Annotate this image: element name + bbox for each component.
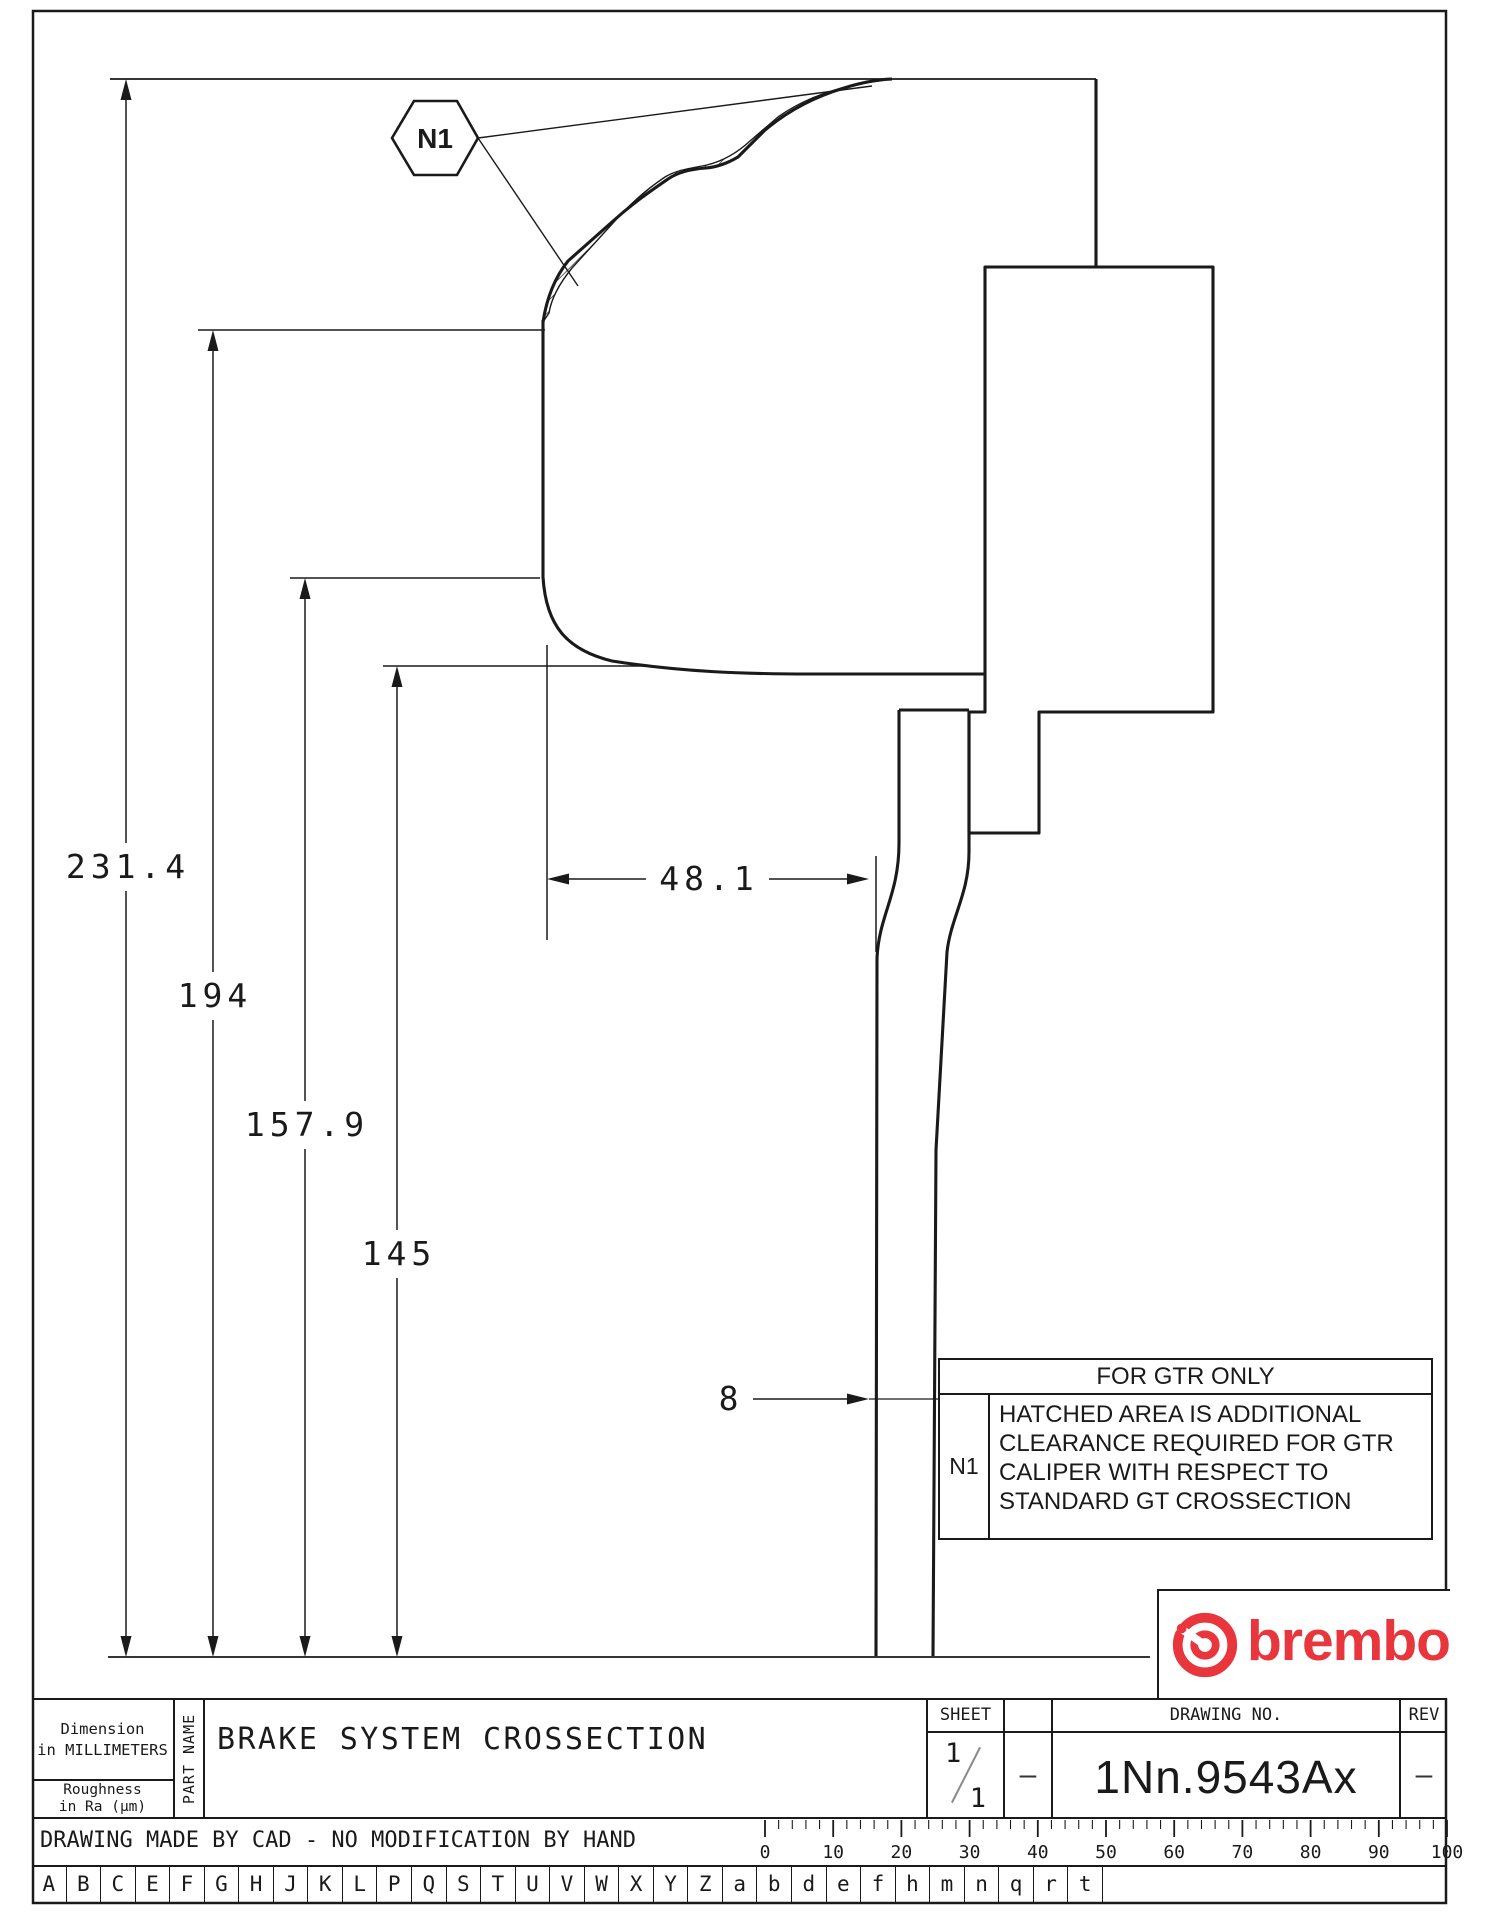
cad-note: DRAWING MADE BY CAD - NO MODIFICATION BY… <box>32 1819 1447 1863</box>
grid-ref-cell: f <box>861 1867 896 1902</box>
brembo-disc-icon <box>1168 1607 1242 1683</box>
sheet-numerator: 1 <box>945 1738 961 1769</box>
sheet-value: 1 1 <box>928 1733 1003 1817</box>
drawing-sheet: N1 231.4 194 157.9 145 48.1 8 0102030405… <box>0 0 1486 1920</box>
gtr-note-line: CALIPER WITH RESPECT TO <box>999 1458 1431 1487</box>
brembo-logo-box: brembo <box>1157 1589 1450 1698</box>
grid-ref-cell: A <box>32 1867 67 1902</box>
grid-ref-cell: C <box>101 1867 136 1902</box>
title-block: Dimension in MILLIMETERS Roughness in Ra… <box>32 1698 1447 1819</box>
grid-ref-cell: e <box>827 1867 862 1902</box>
grid-ref-cell: S <box>447 1867 482 1902</box>
grid-ref-cell: P <box>377 1867 412 1902</box>
part-name-value: BRAKE SYSTEM CROSSECTION <box>217 1722 708 1757</box>
grid-ref-cell: F <box>170 1867 205 1902</box>
grid-ref-cell: W <box>585 1867 620 1902</box>
grid-ref-cell: V <box>550 1867 585 1902</box>
gtr-note-line: HATCHED AREA IS ADDITIONAL <box>999 1400 1431 1429</box>
grid-ref-cell: m <box>930 1867 965 1902</box>
sheet-label: SHEET <box>928 1700 1003 1733</box>
grid-reference-row: ABCEFGHJKLPQSTUVWXYZabdefhmnqrt <box>32 1867 1447 1904</box>
sheet-denominator: 1 <box>970 1783 986 1814</box>
grid-ref-cell: h <box>896 1867 931 1902</box>
spare-header-cell <box>1005 1700 1051 1733</box>
grid-ref-cell: r <box>1034 1867 1069 1902</box>
units-cell: Dimension in MILLIMETERS <box>32 1700 173 1781</box>
gtr-note-text: HATCHED AREA IS ADDITIONAL CLEARANCE REQ… <box>990 1395 1431 1538</box>
grid-ref-cell: G <box>205 1867 240 1902</box>
grid-ref-filler <box>1103 1867 1447 1902</box>
gtr-note-line: STANDARD GT CROSSECTION <box>999 1487 1431 1516</box>
roughness-label: Roughness <box>63 1782 142 1799</box>
drawing-no-value: 1Nn.9543Ax <box>1053 1737 1399 1817</box>
gtr-note-line: CLEARANCE REQUIRED FOR GTR <box>999 1429 1431 1458</box>
roughness-label: in Ra (μm) <box>59 1799 146 1816</box>
grid-ref-cell: B <box>67 1867 102 1902</box>
grid-ref-cell: K <box>308 1867 343 1902</box>
dim-8: 8 <box>719 1379 744 1418</box>
dim-48-1: 48.1 <box>659 859 758 898</box>
hatched-clearance-area <box>543 79 892 322</box>
dimension-lines <box>126 86 938 1637</box>
grid-ref-cell: Z <box>688 1867 723 1902</box>
grid-ref-cell: q <box>999 1867 1034 1902</box>
units-label: Dimension <box>61 1719 145 1740</box>
grid-ref-cell: J <box>274 1867 309 1902</box>
grid-ref-cell: b <box>757 1867 792 1902</box>
gtr-note-ref: N1 <box>940 1395 990 1538</box>
grid-ref-cell: X <box>619 1867 654 1902</box>
part-name-cell: BRAKE SYSTEM CROSSECTION <box>205 1700 928 1817</box>
grid-ref-cell: d <box>792 1867 827 1902</box>
callout-label: N1 <box>417 123 453 154</box>
spare-value: – <box>1005 1733 1051 1817</box>
grid-ref-cell: Y <box>654 1867 689 1902</box>
grid-ref-cell: U <box>516 1867 551 1902</box>
grid-ref-cell: Q <box>412 1867 447 1902</box>
grid-ref-cell: E <box>136 1867 171 1902</box>
grid-ref-cell: H <box>239 1867 274 1902</box>
brembo-wordmark: brembo <box>1247 1608 1450 1674</box>
part-name-label-cell: PART NAME <box>175 1700 205 1817</box>
part-name-label: PART NAME <box>180 1713 198 1803</box>
grid-ref-cell: n <box>965 1867 1000 1902</box>
grid-ref-cell: t <box>1068 1867 1103 1902</box>
cad-note-row: DRAWING MADE BY CAD - NO MODIFICATION BY… <box>32 1819 1447 1867</box>
grid-ref-cell: T <box>481 1867 516 1902</box>
drawing-no-label: DRAWING NO. <box>1053 1700 1399 1733</box>
dim-145: 145 <box>362 1234 437 1273</box>
grid-ref-cell: a <box>723 1867 758 1902</box>
roughness-cell: Roughness in Ra (μm) <box>32 1781 173 1817</box>
rev-value: – <box>1401 1733 1447 1817</box>
gtr-note-box: FOR GTR ONLY N1 HATCHED AREA IS ADDITION… <box>938 1358 1433 1540</box>
grid-ref-cell: L <box>343 1867 378 1902</box>
gtr-note-header: FOR GTR ONLY <box>940 1360 1431 1395</box>
dim-231-4: 231.4 <box>66 847 190 886</box>
rev-label: REV <box>1401 1700 1447 1733</box>
dim-194: 194 <box>178 976 253 1015</box>
units-label: in MILLIMETERS <box>37 1740 168 1761</box>
dim-157-9: 157.9 <box>245 1105 369 1144</box>
